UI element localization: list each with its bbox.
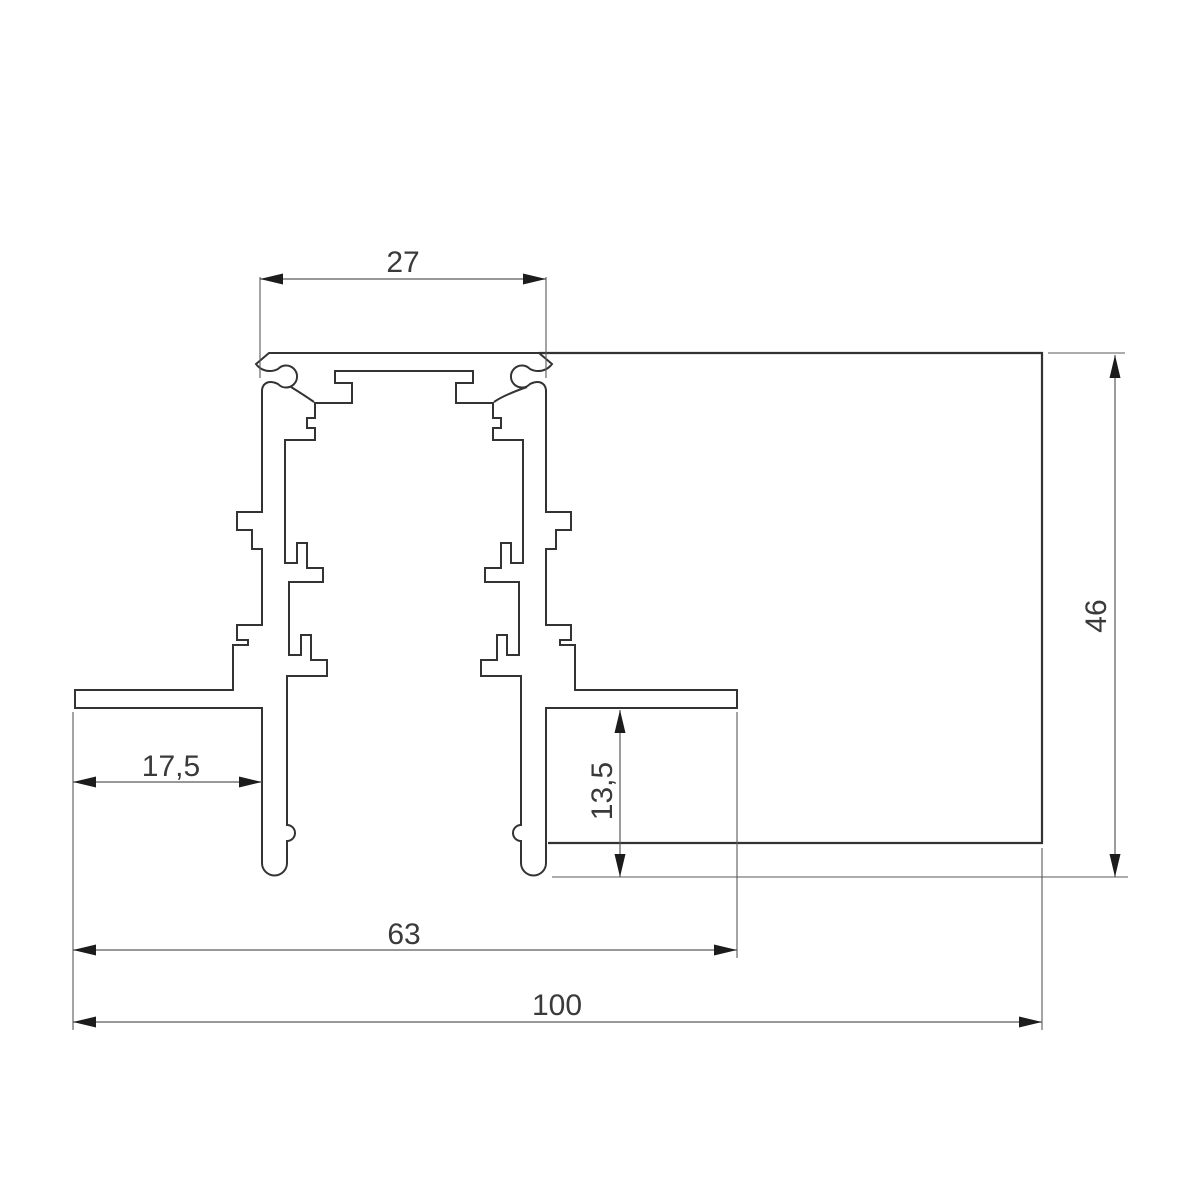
profile-outline	[75, 353, 737, 876]
dimension-arrows	[73, 274, 1121, 1028]
arrow-27-left	[260, 274, 283, 285]
arrow-100-right	[1019, 1017, 1042, 1028]
dim-label-left-flange: 17,5	[142, 750, 200, 783]
dim-label-total-width: 100	[532, 989, 582, 1022]
arrow-46-bottom	[1110, 854, 1121, 877]
arrow-17-5-left	[73, 777, 96, 788]
dimension-labels: 27 17,5 63 100 13,5 46	[142, 246, 1113, 1022]
hook-undercut-right	[494, 387, 527, 402]
dim-label-top-width: 27	[386, 246, 419, 279]
arrow-46-top	[1110, 355, 1121, 378]
arrow-17-5-right	[239, 777, 262, 788]
arrow-27-right	[523, 274, 546, 285]
arrow-100-left	[73, 1017, 96, 1028]
dim-label-right-height: 46	[1080, 599, 1113, 632]
arrow-63-left	[73, 945, 96, 956]
drawing-canvas: 27 17,5 63 100 13,5 46	[0, 0, 1200, 1200]
profile-geometry	[75, 353, 1042, 876]
arrow-13-5-top	[615, 710, 626, 733]
dim-label-flange-span: 63	[387, 918, 420, 951]
extension-lines	[73, 277, 1128, 1030]
dim-label-lower-depth: 13,5	[586, 762, 619, 820]
technical-drawing: 27 17,5 63 100 13,5 46	[0, 0, 1200, 1200]
arrow-13-5-bottom	[615, 854, 626, 877]
hook-undercut-left	[291, 387, 314, 402]
dimension-lines	[73, 279, 1115, 1022]
arrow-63-right	[714, 945, 737, 956]
